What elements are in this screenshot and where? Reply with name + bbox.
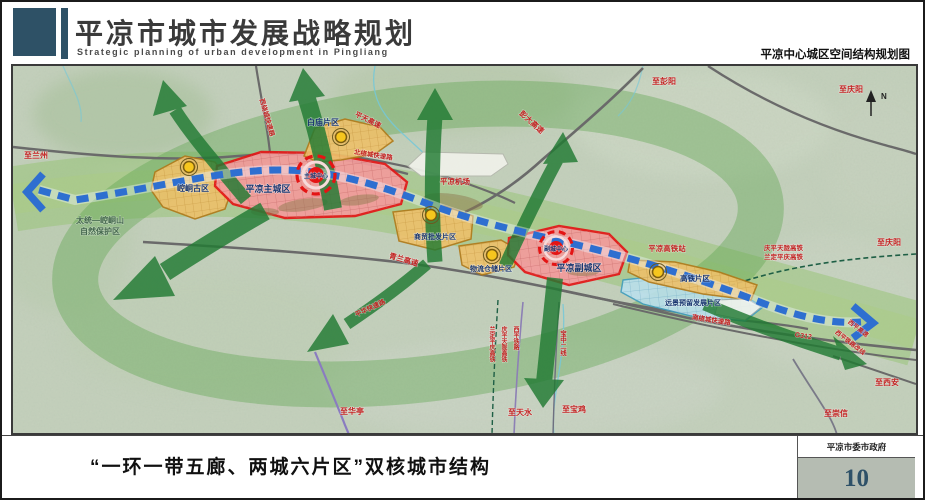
- dest-pengyang: 至彭阳: [652, 76, 676, 86]
- label-main-city: 平凉主城区: [245, 183, 290, 194]
- organization-label: 平凉市委市政府: [798, 436, 915, 458]
- dest-qingyang-top: 至庆阳: [839, 84, 863, 94]
- label-gaotie: 高铁片区: [680, 273, 710, 283]
- dest-baoji: 至宝鸡: [562, 404, 586, 414]
- dest-qingyang-right: 至庆阳: [877, 237, 901, 247]
- dest-tianshui: 至天水: [508, 407, 533, 417]
- page: 平凉市城市发展战略规划 Strategic planning of urban …: [0, 0, 925, 500]
- dest-xian: 至西安: [875, 377, 899, 387]
- node: [650, 264, 667, 281]
- footer: “一环一带五廊、两城六片区”双核城市结构 平凉市委市政府 10: [2, 435, 923, 500]
- footer-right-box: 平凉市委市政府 10: [797, 436, 915, 500]
- node: [333, 129, 350, 146]
- label-sub-city: 平凉副城区: [556, 262, 601, 273]
- header: 平凉市城市发展战略规划 Strategic planning of urban …: [2, 2, 923, 64]
- logo-bar: [61, 8, 68, 59]
- label-kongtong: 崆峒古区: [177, 183, 209, 193]
- map-frame: 主城中心 副城中心 白庙片区 崆峒古区 平凉主城区 商贸批发片区 物流仓储片区 …: [11, 64, 918, 435]
- dest-chongxin: 至崇信: [824, 408, 848, 418]
- planning-map: 主城中心 副城中心 白庙片区 崆峒古区 平凉主城区 商贸批发片区 物流仓储片区 …: [13, 66, 916, 433]
- map-sheet-label: 平凉中心城区空间结构规划图: [761, 46, 911, 62]
- label-hsr-qptl: 庆平天陇高铁: [763, 243, 804, 252]
- label-reserved: 远景预留发展片区: [665, 298, 721, 307]
- label-xiping-rail: 西平铁路: [512, 325, 519, 351]
- sub-core-label: 副城中心: [544, 245, 568, 253]
- page-title: 平凉市城市发展战略规划: [75, 12, 416, 52]
- label-shangmao: 商贸批发片区: [414, 232, 456, 241]
- page-number: 10: [798, 458, 915, 500]
- main-core-label: 主城中心: [304, 172, 328, 180]
- label-hsr-station: 平凉高铁站: [648, 243, 686, 253]
- airport-shape: [408, 152, 508, 176]
- page-subtitle-en: Strategic planning of urban development …: [77, 47, 389, 57]
- compass-n-label: N: [881, 92, 887, 101]
- label-wuliu: 物流仓储片区: [470, 264, 512, 273]
- label-nature-reserve-1: 太统—崆峒山: [75, 215, 124, 225]
- label-airport: 平凉机场: [440, 176, 470, 186]
- node: [484, 247, 501, 264]
- node: [423, 207, 440, 224]
- node: [181, 159, 198, 176]
- label-hsr-ldpq: 兰定平庆高铁: [764, 252, 804, 261]
- map-caption: “一环一带五廊、两城六片区”双核城市结构: [90, 452, 491, 479]
- label-nature-reserve-2: 自然保护区: [80, 226, 120, 236]
- dest-lanzhou: 至兰州: [24, 150, 48, 160]
- dest-huating: 至华亭: [340, 406, 364, 416]
- logo-square: [13, 8, 56, 56]
- label-baimiao: 白庙片区: [307, 117, 339, 127]
